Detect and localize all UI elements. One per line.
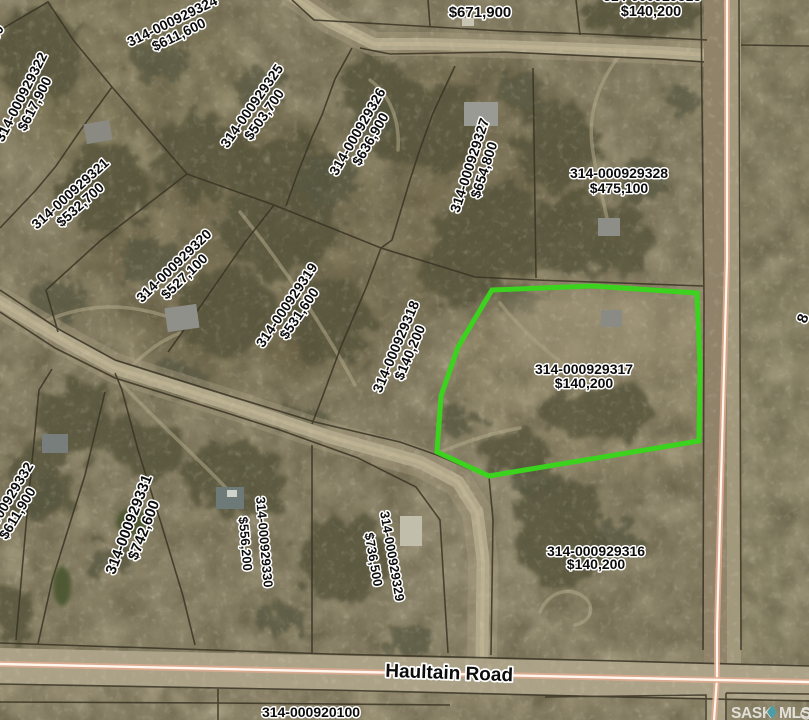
svg-text:$140,200: $140,200: [555, 375, 614, 391]
svg-text:$140,200: $140,200: [567, 556, 626, 572]
svg-text:$671,900: $671,900: [449, 4, 512, 21]
svg-text:$140,200: $140,200: [621, 4, 681, 20]
svg-text:Haultain Road: Haultain Road: [385, 661, 513, 686]
svg-text:314-000920100: 314-000920100: [262, 704, 360, 720]
svg-text:$475,100: $475,100: [590, 180, 649, 196]
svg-text:314-000929328: 314-000929328: [570, 165, 668, 181]
svg-text:MLS: MLS: [779, 705, 809, 720]
